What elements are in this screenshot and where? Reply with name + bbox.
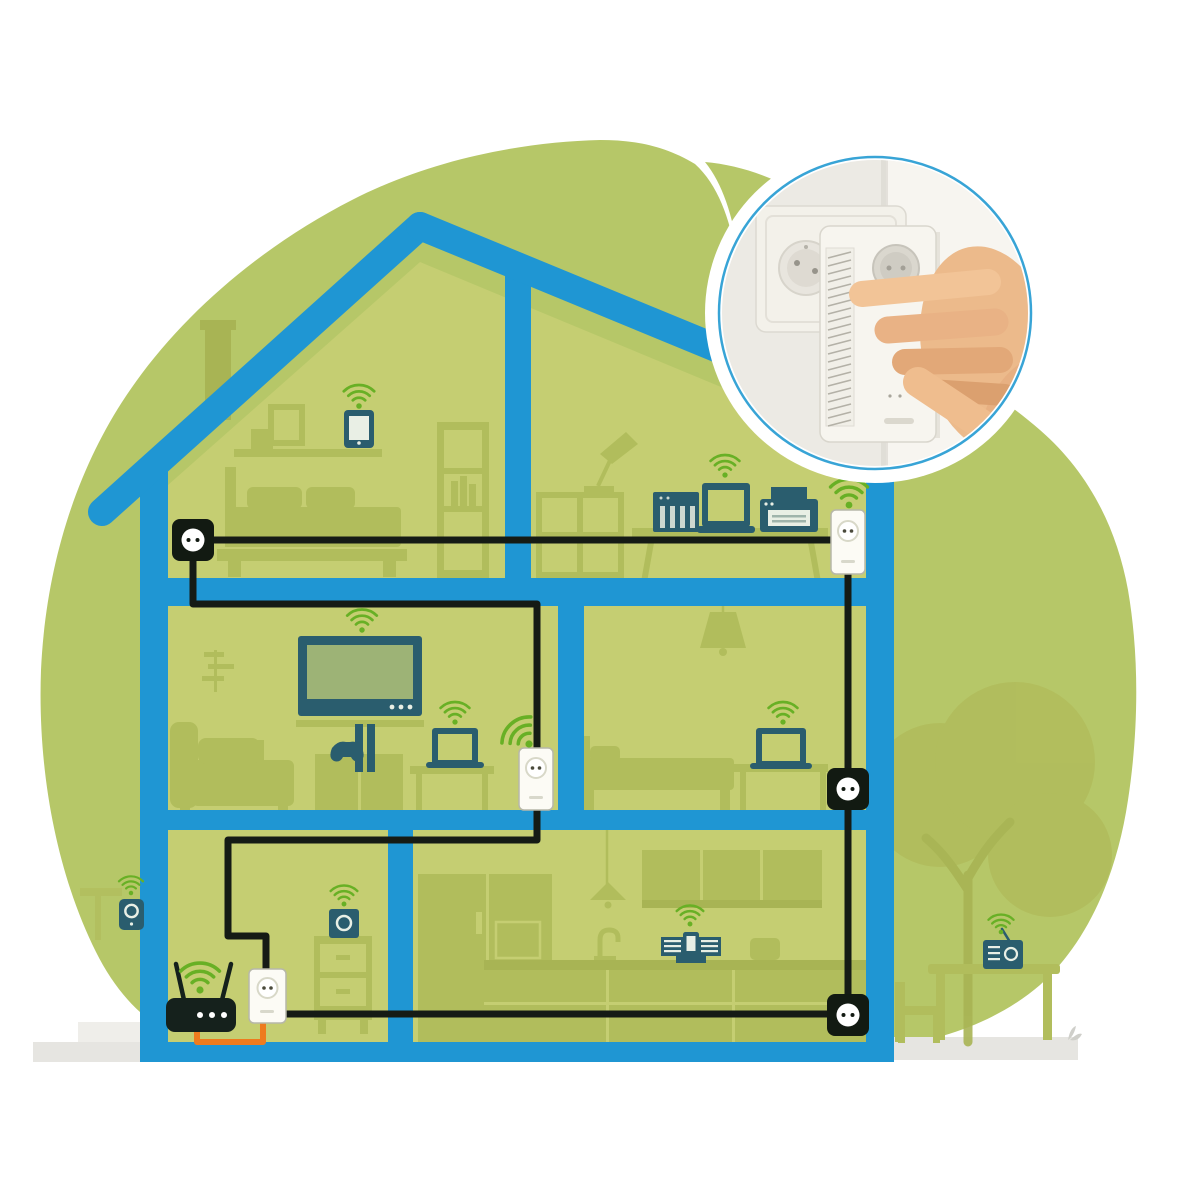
- powerline-adapter-living-room: [519, 748, 553, 810]
- wall-socket-icon: [827, 768, 869, 810]
- upper-cabinets: [642, 850, 822, 908]
- pillow: [306, 487, 355, 509]
- tv-icon: [298, 636, 422, 716]
- tablet-icon: [344, 410, 374, 448]
- powerline-adapter-utility: [249, 969, 286, 1023]
- ring-finger: [905, 360, 1000, 362]
- middle-floor: [140, 810, 894, 830]
- wall-socket-icon: [172, 519, 214, 561]
- left-step-top: [78, 1022, 140, 1042]
- smart-speaker-icon: [329, 909, 359, 938]
- right-ground-strip: [893, 1037, 1078, 1060]
- outdoor-camera-icon: [119, 899, 144, 930]
- nas-icon: [653, 492, 699, 532]
- laptop-icon: [426, 728, 484, 768]
- index-finger: [862, 282, 988, 294]
- sign: [80, 888, 122, 896]
- toaster: [750, 938, 780, 960]
- bookcase: [437, 422, 489, 578]
- powerline-adapter-attic: [831, 510, 865, 574]
- wall-socket-icon: [827, 994, 869, 1036]
- utility-room-furniture: [314, 936, 372, 1034]
- middle-finger: [888, 322, 995, 330]
- laptop-icon: [697, 483, 755, 533]
- illustration-canvas: [0, 0, 1200, 1200]
- middle-divider-wall: [558, 590, 584, 830]
- pillow: [247, 487, 302, 509]
- laptop-icon: [750, 728, 812, 769]
- adapter-brand-label: [884, 418, 914, 424]
- powerline-home-diagram: [0, 0, 1200, 1200]
- left-wall: [140, 470, 168, 1062]
- wall-shelf: [234, 449, 382, 457]
- attic-divider-wall: [505, 276, 531, 606]
- left-step-bottom: [33, 1042, 143, 1062]
- right-wall: [866, 448, 894, 1062]
- bed: [578, 758, 734, 790]
